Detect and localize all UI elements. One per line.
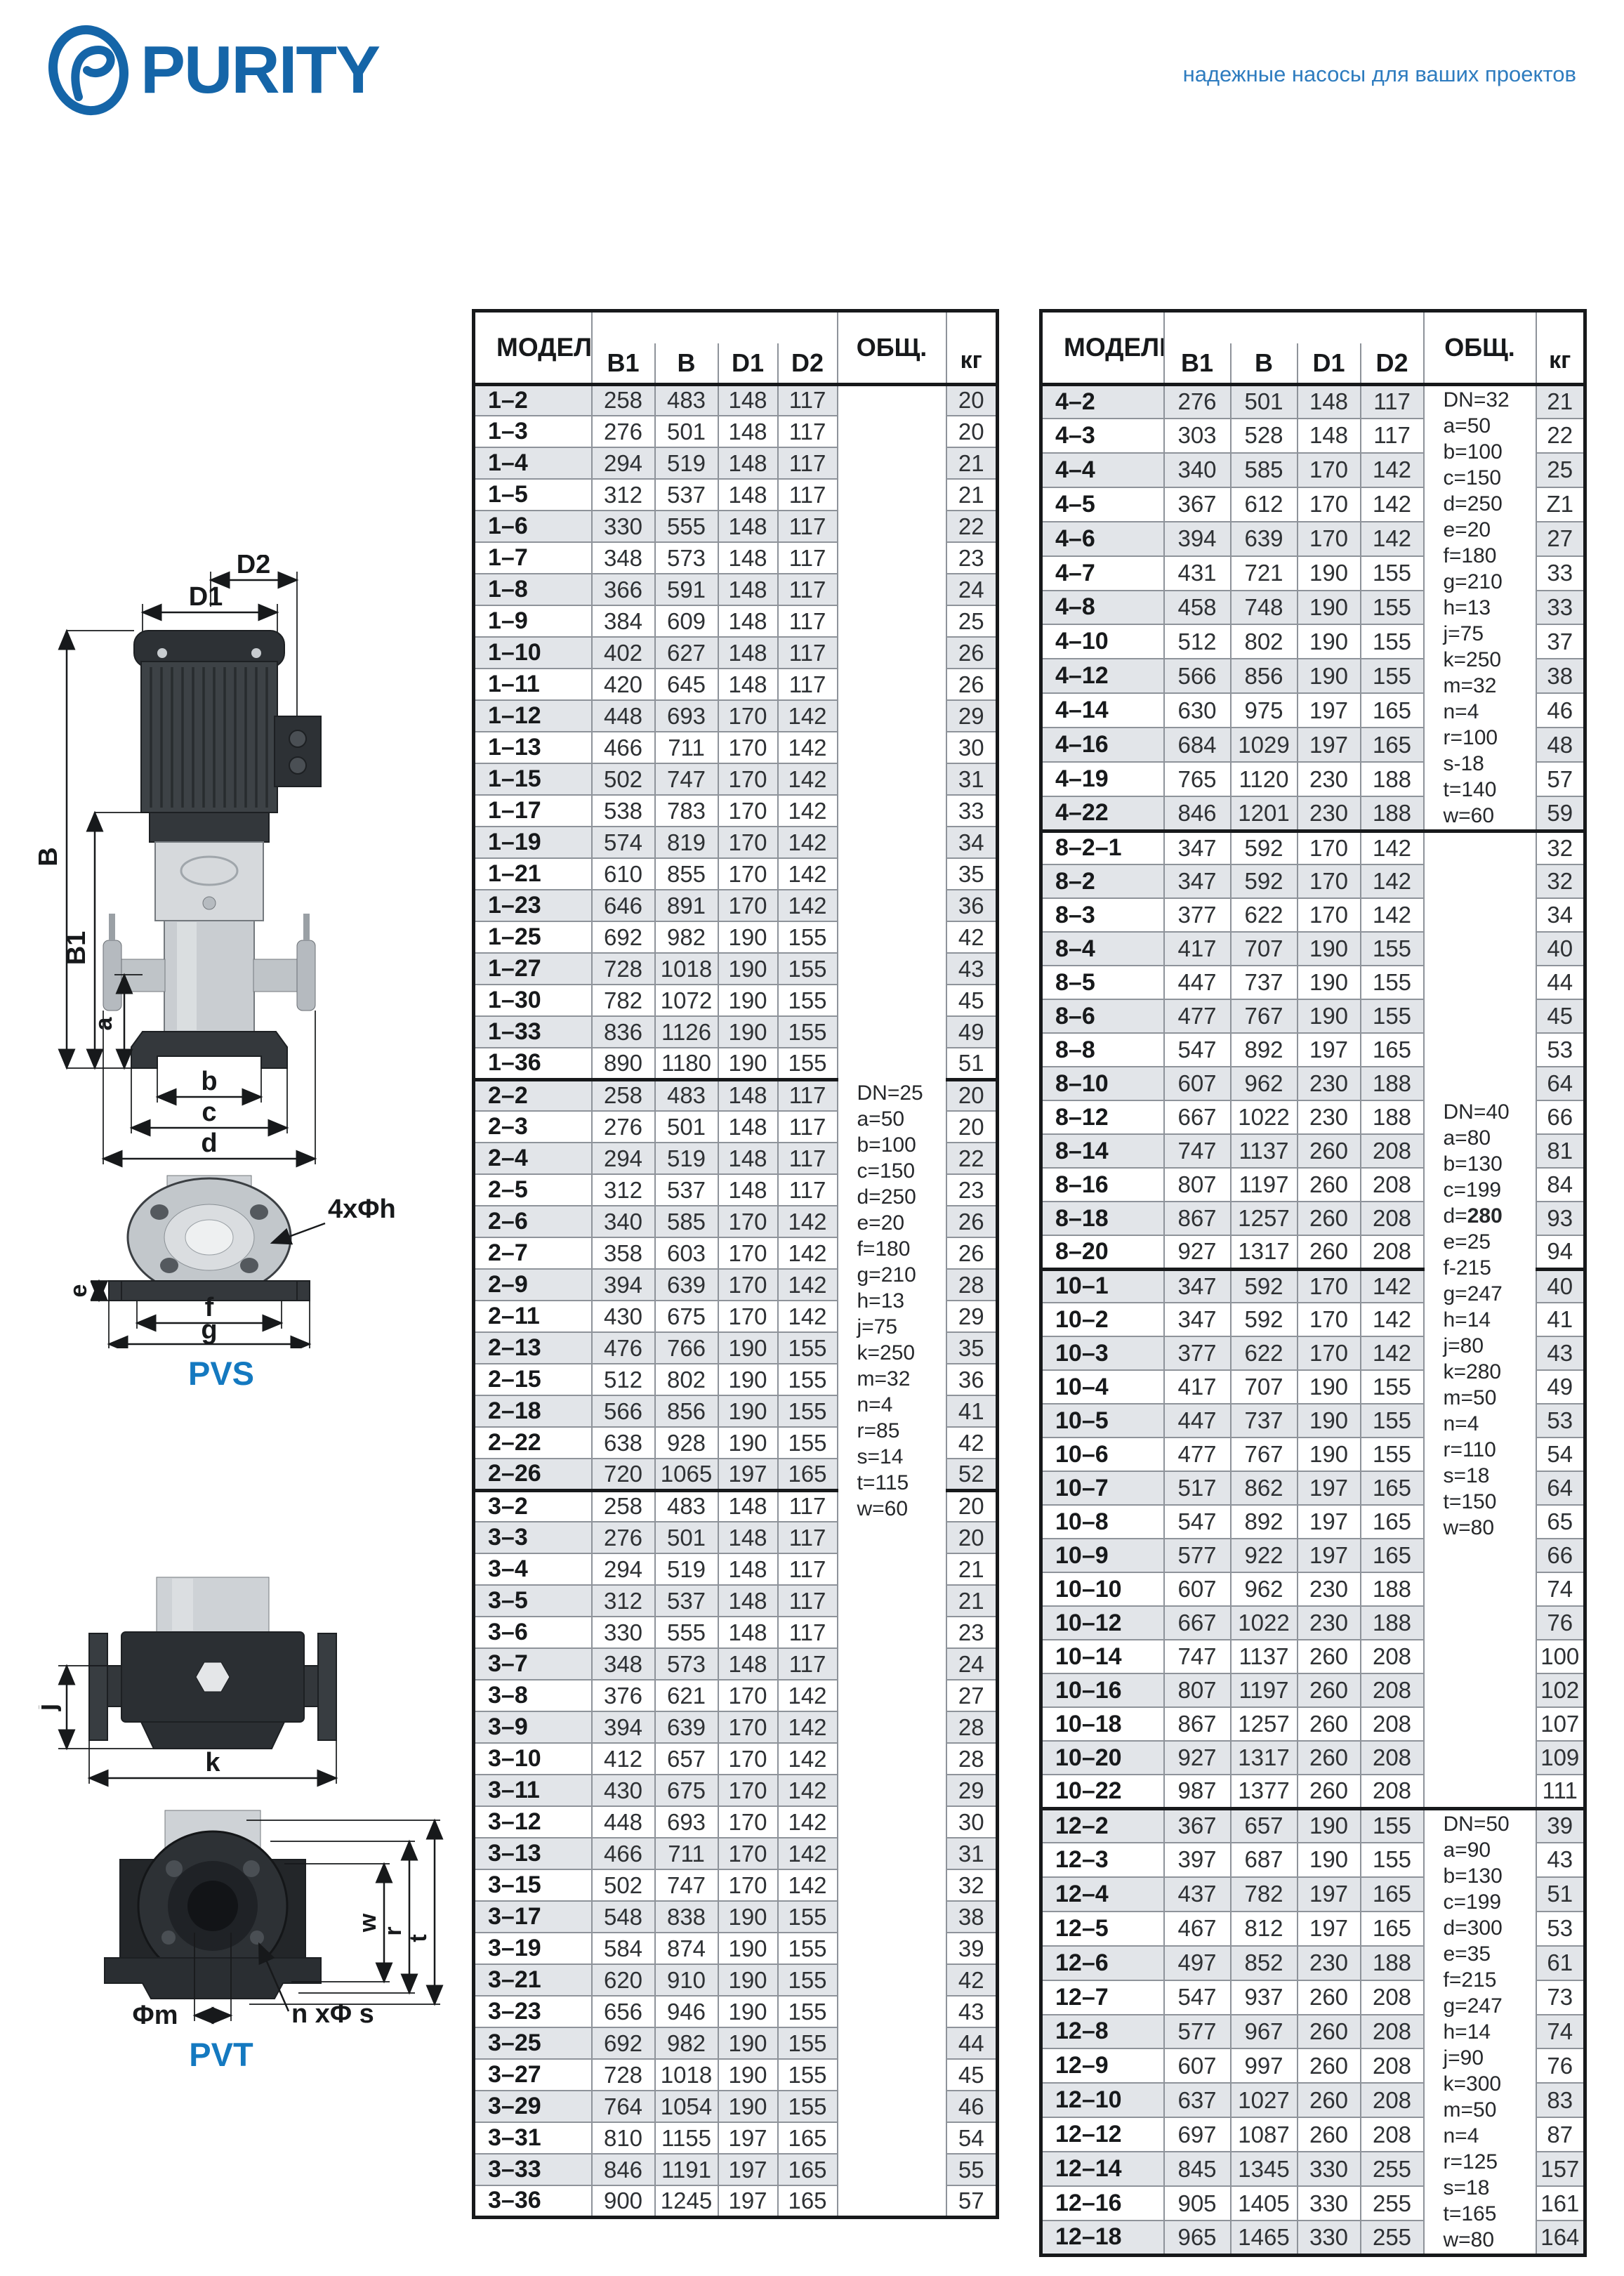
weight-cell: 42 xyxy=(946,1964,998,1996)
dim-cell: 190 xyxy=(718,953,778,985)
model-cell: 12–18 xyxy=(1041,2221,1164,2255)
weight-cell: 61 xyxy=(1536,1946,1585,1980)
dim-cell: 483 xyxy=(655,384,718,416)
model-cell: 8–2 xyxy=(1041,864,1164,898)
weight-cell: 45 xyxy=(946,2059,998,2091)
dim-cell: 577 xyxy=(1164,1539,1231,1572)
dim-cell: 197 xyxy=(1298,1471,1361,1505)
model-cell: 12–10 xyxy=(1041,2083,1164,2117)
model-cell: 3–8 xyxy=(474,1680,592,1711)
dimensions-table-right: МОДЕЛЬОБЩ.кгB1BD1D24–2276501148117DN=32a… xyxy=(1039,309,1587,2257)
dim-cell: 155 xyxy=(1361,591,1424,625)
model-cell: 3–33 xyxy=(474,2154,592,2185)
dim-cell: 117 xyxy=(778,574,838,605)
note-line: s=18 xyxy=(1444,2175,1535,2201)
col-header-dim: B1 xyxy=(1164,343,1231,385)
model-cell: 2–15 xyxy=(474,1364,592,1395)
weight-cell: 64 xyxy=(1536,1471,1585,1505)
dim-cell: 692 xyxy=(592,2027,655,2059)
dim-cell: 975 xyxy=(1231,693,1298,728)
note-line: r=125 xyxy=(1444,2149,1535,2175)
dim-cell: 190 xyxy=(718,1016,778,1048)
dim-cell: 197 xyxy=(1298,1505,1361,1539)
dim-cell: 547 xyxy=(1164,1980,1231,2015)
weight-cell: 83 xyxy=(1536,2083,1585,2117)
model-cell: 12–14 xyxy=(1041,2152,1164,2186)
col-header-dim: D2 xyxy=(778,343,838,385)
dim-cell: 260 xyxy=(1298,1235,1361,1269)
dim-cell: 845 xyxy=(1164,2152,1231,2186)
dim-cell: 810 xyxy=(592,2122,655,2154)
model-cell: 2–22 xyxy=(474,1427,592,1459)
dim-cell: 117 xyxy=(778,1585,838,1617)
model-cell: 1–19 xyxy=(474,827,592,858)
note-line: b=130 xyxy=(1444,1863,1535,1889)
dim-cell: 260 xyxy=(1298,1640,1361,1673)
dim-cell: 1257 xyxy=(1231,1202,1298,1235)
note-line: k=250 xyxy=(857,1340,945,1366)
weight-cell: 81 xyxy=(1536,1134,1585,1168)
model-cell: 8–6 xyxy=(1041,999,1164,1033)
model-cell: 2–4 xyxy=(474,1143,592,1174)
dim-cell: 148 xyxy=(718,1079,778,1111)
model-cell: 12–12 xyxy=(1041,2117,1164,2152)
weight-cell: 65 xyxy=(1536,1505,1585,1539)
weight-cell: 57 xyxy=(946,2185,998,2217)
brand-tagline: надежные насосы для ваших проектов xyxy=(1183,62,1576,87)
note-line: m=50 xyxy=(1444,2097,1535,2123)
model-cell: 10–14 xyxy=(1041,1640,1164,1673)
dim-cell: 142 xyxy=(778,1806,838,1838)
dim-cell: 148 xyxy=(718,605,778,637)
dim-cell: 190 xyxy=(718,2091,778,2122)
dim-cell: 312 xyxy=(592,1585,655,1617)
note-line: w=60 xyxy=(1444,803,1535,829)
dim-cell: 367 xyxy=(1164,487,1231,522)
weight-cell: 37 xyxy=(1536,624,1585,659)
note-line: j=75 xyxy=(857,1314,945,1340)
dim-cell: 764 xyxy=(592,2091,655,2122)
dim-cell: 208 xyxy=(1361,1134,1424,1168)
dim-cell: 639 xyxy=(655,1269,718,1301)
weight-cell: 51 xyxy=(946,1048,998,1079)
dim-cell: 348 xyxy=(592,542,655,574)
dim-cell: 783 xyxy=(655,795,718,827)
dim-cell: 566 xyxy=(1164,659,1231,693)
model-cell: 10–20 xyxy=(1041,1741,1164,1775)
dim-cell: 170 xyxy=(718,1743,778,1775)
dim-cell: 420 xyxy=(592,669,655,700)
weight-cell: 22 xyxy=(946,511,998,542)
dim-cell: 1245 xyxy=(655,2185,718,2217)
model-cell: 10–5 xyxy=(1041,1404,1164,1438)
dim-cell: 294 xyxy=(592,447,655,479)
dim-cell: 430 xyxy=(592,1301,655,1332)
dim-cell: 538 xyxy=(592,795,655,827)
dim-cell: 892 xyxy=(1231,1505,1298,1539)
weight-cell: 34 xyxy=(946,827,998,858)
dim-cell: 1317 xyxy=(1231,1235,1298,1269)
dim-cell: 728 xyxy=(592,953,655,985)
dim-cell: 905 xyxy=(1164,2186,1231,2221)
note-line: t=115 xyxy=(857,1470,945,1496)
note-line: t=165 xyxy=(1444,2201,1535,2227)
model-cell: 3–12 xyxy=(474,1806,592,1838)
weight-cell: 36 xyxy=(946,1364,998,1395)
dim-cell: 1155 xyxy=(655,2122,718,2154)
dim-cell: 190 xyxy=(718,1996,778,2027)
dim-cell: 330 xyxy=(592,511,655,542)
pvs-label: PVS xyxy=(39,1354,404,1393)
dim-cell: 812 xyxy=(1231,1912,1298,1946)
note-line: s-18 xyxy=(1444,751,1535,777)
model-cell: 12–6 xyxy=(1041,1946,1164,1980)
model-cell: 3–29 xyxy=(474,2091,592,2122)
dim-cell: 1345 xyxy=(1231,2152,1298,2186)
weight-cell: 33 xyxy=(1536,556,1585,591)
weight-cell: 32 xyxy=(1536,864,1585,898)
dim-cell: 802 xyxy=(655,1364,718,1395)
dim-cell: 197 xyxy=(1298,1539,1361,1572)
dim-cell: 891 xyxy=(655,890,718,921)
dim-cell: 142 xyxy=(778,1838,838,1869)
model-cell: 12–7 xyxy=(1041,1980,1164,2015)
table-row: 8–2–1347592170142DN=40a=80b=130c=199d=28… xyxy=(1041,831,1585,864)
dim-cell: 467 xyxy=(1164,1912,1231,1946)
weight-cell: 93 xyxy=(1536,1202,1585,1235)
weight-cell: 29 xyxy=(946,700,998,732)
col-header-dim: D1 xyxy=(718,343,778,385)
dim-cell: 148 xyxy=(718,1553,778,1585)
dim-cell: 260 xyxy=(1298,1707,1361,1741)
dim-cell: 384 xyxy=(592,605,655,637)
weight-cell: Z1 xyxy=(1536,487,1585,522)
dim-cell: 148 xyxy=(718,1143,778,1174)
dim-cell: 197 xyxy=(1298,1033,1361,1067)
dim-cell: 258 xyxy=(592,384,655,416)
dim-cell: 188 xyxy=(1361,1606,1424,1640)
note-line: c=150 xyxy=(1444,465,1535,491)
dim-cell: 165 xyxy=(778,2122,838,2154)
weight-cell: 27 xyxy=(1536,522,1585,556)
notes-block: DN=50a=90b=130c=199d=300e=35f=215g=247h=… xyxy=(1425,1811,1535,2253)
dim-cell: 165 xyxy=(1361,1912,1424,1946)
dim-cell: 836 xyxy=(592,1016,655,1048)
note-line: f=215 xyxy=(1444,1967,1535,1993)
note-line: e=20 xyxy=(857,1210,945,1236)
dim-cell: 519 xyxy=(655,447,718,479)
dim-cell: 477 xyxy=(1164,1438,1231,1471)
weight-cell: 111 xyxy=(1536,1775,1585,1808)
dim-cell: 592 xyxy=(1231,864,1298,898)
dim-cell: 260 xyxy=(1298,2117,1361,2152)
table-header: МОДЕЛЬОБЩ.кгB1BD1D2 xyxy=(1041,311,1585,385)
dim-cell: 846 xyxy=(592,2154,655,2185)
weight-cell: 41 xyxy=(946,1395,998,1427)
dim-cell: 747 xyxy=(1164,1640,1231,1673)
weight-cell: 23 xyxy=(946,1174,998,1206)
model-cell: 3–9 xyxy=(474,1711,592,1743)
dim-cell: 1180 xyxy=(655,1048,718,1079)
dim-cell: 592 xyxy=(1231,831,1298,864)
dim-cell: 142 xyxy=(778,1206,838,1237)
dim-cell: 592 xyxy=(1231,1303,1298,1336)
dim-cell: 431 xyxy=(1164,556,1231,591)
dim-cell: 148 xyxy=(718,542,778,574)
dim-cell: 190 xyxy=(1298,1808,1361,1843)
dim-cell: 612 xyxy=(1231,487,1298,522)
note-line: f-215 xyxy=(1444,1255,1535,1281)
weight-cell: 21 xyxy=(1536,384,1585,419)
dim-cell: 197 xyxy=(718,1459,778,1490)
dim-cell: 230 xyxy=(1298,796,1361,831)
dim-cell: 519 xyxy=(655,1553,718,1585)
dim-cell: 165 xyxy=(778,2154,838,2185)
dim-cell: 377 xyxy=(1164,898,1231,932)
dim-cell: 862 xyxy=(1231,1471,1298,1505)
note-line: g=210 xyxy=(857,1262,945,1288)
dim-cell: 142 xyxy=(778,1775,838,1806)
table-body: 4–2276501148117DN=32a=50b=100c=150d=250e… xyxy=(1041,384,1585,2255)
dim-cell: 117 xyxy=(778,605,838,637)
model-cell: 10–22 xyxy=(1041,1775,1164,1808)
dim-label-c: c xyxy=(202,1098,216,1127)
note-line: a=80 xyxy=(1444,1125,1535,1151)
dim-cell: 230 xyxy=(1298,762,1361,796)
note-line: f=180 xyxy=(857,1236,945,1262)
dim-cell: 142 xyxy=(1361,1303,1424,1336)
dim-cell: 340 xyxy=(1164,453,1231,487)
dim-cell: 377 xyxy=(1164,1336,1231,1370)
dim-cell: 148 xyxy=(1298,384,1361,419)
weight-cell: 43 xyxy=(1536,1336,1585,1370)
dim-cell: 394 xyxy=(1164,522,1231,556)
dim-cell: 148 xyxy=(718,1648,778,1680)
dim-cell: 148 xyxy=(1298,419,1361,453)
model-cell: 2–2 xyxy=(474,1079,592,1111)
dim-cell: 197 xyxy=(1298,693,1361,728)
weight-cell: 26 xyxy=(946,669,998,700)
dim-cell: 627 xyxy=(655,637,718,669)
dim-cell: 747 xyxy=(655,763,718,795)
model-cell: 2–5 xyxy=(474,1174,592,1206)
dim-cell: 855 xyxy=(655,858,718,890)
note-line: w=80 xyxy=(1444,1515,1535,1541)
col-header-obsh: ОБЩ. xyxy=(1424,311,1536,385)
dim-cell: 155 xyxy=(1361,1370,1424,1404)
weight-cell: 49 xyxy=(1536,1370,1585,1404)
dim-cell: 376 xyxy=(592,1680,655,1711)
weight-cell: 107 xyxy=(1536,1707,1585,1741)
dim-cell: 620 xyxy=(592,1964,655,1996)
dim-cell: 155 xyxy=(1361,999,1424,1033)
weight-cell: 102 xyxy=(1536,1673,1585,1707)
dim-cell: 517 xyxy=(1164,1471,1231,1505)
note-line: r=110 xyxy=(1444,1437,1535,1463)
dim-cell: 142 xyxy=(778,1869,838,1901)
dim-cell: 155 xyxy=(1361,1404,1424,1438)
dim-cell: 577 xyxy=(1164,2015,1231,2049)
weight-cell: 38 xyxy=(1536,659,1585,693)
dim-cell: 170 xyxy=(718,1301,778,1332)
dim-cell: 148 xyxy=(718,1522,778,1553)
note-line: h=13 xyxy=(1444,595,1535,621)
note-line: s=18 xyxy=(1444,1463,1535,1489)
model-cell: 2–9 xyxy=(474,1269,592,1301)
dim-cell: 148 xyxy=(718,1585,778,1617)
weight-cell: 45 xyxy=(1536,999,1585,1033)
dim-cell: 260 xyxy=(1298,1134,1361,1168)
dim-cell: 874 xyxy=(655,1933,718,1964)
dim-cell: 142 xyxy=(778,732,838,763)
note-line: m=32 xyxy=(1444,673,1535,699)
dim-cell: 117 xyxy=(1361,384,1424,419)
dim-cell: 748 xyxy=(1231,591,1298,625)
dim-cell: 585 xyxy=(655,1206,718,1237)
dim-cell: 148 xyxy=(718,416,778,447)
dim-cell: 1087 xyxy=(1231,2117,1298,2152)
dim-cell: 170 xyxy=(718,890,778,921)
weight-cell: 31 xyxy=(946,1838,998,1869)
weight-cell: 38 xyxy=(946,1901,998,1933)
notes-cell: DN=32a=50b=100c=150d=250e=20f=180g=210h=… xyxy=(1424,384,1536,831)
note-line: a=50 xyxy=(857,1106,945,1132)
model-cell: 1–25 xyxy=(474,921,592,953)
dim-label-d1: D1 xyxy=(189,582,223,612)
note-line: h=14 xyxy=(1444,1307,1535,1333)
dim-cell: 417 xyxy=(1164,932,1231,966)
dim-cell: 208 xyxy=(1361,2048,1424,2083)
note-line: e=20 xyxy=(1444,517,1535,543)
dim-cell: 255 xyxy=(1361,2221,1424,2255)
purity-logo: PURITY xyxy=(44,24,379,117)
model-cell: 3–15 xyxy=(474,1869,592,1901)
dim-cell: 197 xyxy=(1298,1877,1361,1912)
dim-cell: 684 xyxy=(1164,728,1231,762)
dim-cell: 707 xyxy=(1231,1370,1298,1404)
dim-cell: 142 xyxy=(1361,487,1424,522)
note-line: n=4 xyxy=(1444,1411,1535,1437)
model-cell: 3–17 xyxy=(474,1901,592,1933)
dim-cell: 258 xyxy=(592,1490,655,1522)
dim-cell: 148 xyxy=(718,574,778,605)
dim-cell: 170 xyxy=(1298,864,1361,898)
dim-cell: 366 xyxy=(592,574,655,605)
dim-cell: 142 xyxy=(1361,453,1424,487)
dim-cell: 1317 xyxy=(1231,1741,1298,1775)
note-line: c=150 xyxy=(857,1158,945,1184)
model-cell: 4–2 xyxy=(1041,384,1164,419)
dim-cell: 260 xyxy=(1298,1673,1361,1707)
dim-cell: 1072 xyxy=(655,985,718,1016)
dim-cell: 190 xyxy=(1298,1370,1361,1404)
weight-cell: 22 xyxy=(1536,419,1585,453)
weight-cell: 74 xyxy=(1536,1572,1585,1606)
model-cell: 4–6 xyxy=(1041,522,1164,556)
dim-cell: 117 xyxy=(778,669,838,700)
dim-cell: 170 xyxy=(718,1838,778,1869)
dim-cell: 148 xyxy=(718,669,778,700)
note-line: s=14 xyxy=(857,1444,945,1470)
dim-cell: 117 xyxy=(778,1079,838,1111)
dim-cell: 170 xyxy=(718,1206,778,1237)
model-cell: 3–2 xyxy=(474,1490,592,1522)
dim-cell: 190 xyxy=(1298,659,1361,693)
dim-cell: 412 xyxy=(592,1743,655,1775)
dim-cell: 258 xyxy=(592,1079,655,1111)
dim-cell: 170 xyxy=(718,858,778,890)
model-cell: 12–3 xyxy=(1041,1843,1164,1877)
dim-cell: 483 xyxy=(655,1490,718,1522)
dim-cell: 555 xyxy=(655,511,718,542)
model-cell: 10–18 xyxy=(1041,1707,1164,1741)
model-cell: 4–16 xyxy=(1041,728,1164,762)
dim-cell: 747 xyxy=(1164,1134,1231,1168)
model-cell: 8–5 xyxy=(1041,966,1164,999)
notes-block: DN=25a=50b=100c=150d=250e=20f=180g=210h=… xyxy=(839,1080,945,1522)
dim-cell: 155 xyxy=(778,1048,838,1079)
col-header-dim: B xyxy=(655,343,718,385)
weight-cell: 57 xyxy=(1536,762,1585,796)
dim-cell: 982 xyxy=(655,921,718,953)
note-line: k=280 xyxy=(1444,1359,1535,1385)
weight-cell: 164 xyxy=(1536,2221,1585,2255)
dim-cell: 675 xyxy=(655,1301,718,1332)
weight-cell: 48 xyxy=(1536,728,1585,762)
dim-cell: 155 xyxy=(778,1964,838,1996)
dim-cell: 165 xyxy=(778,1459,838,1490)
weight-cell: 26 xyxy=(946,1206,998,1237)
weight-cell: 40 xyxy=(1536,1269,1585,1303)
dim-label-4xfh: 4xΦh xyxy=(328,1195,396,1224)
dim-cell: 967 xyxy=(1231,2015,1298,2049)
dim-cell: 937 xyxy=(1231,1980,1298,2015)
weight-cell: 41 xyxy=(1536,1303,1585,1336)
model-cell: 4–8 xyxy=(1041,591,1164,625)
dimensions-table-left: МОДЕЛЬОБЩ.кгB1BD1D21–2258483148117DN=25a… xyxy=(472,309,999,2219)
model-cell: 8–12 xyxy=(1041,1100,1164,1134)
dim-cell: 230 xyxy=(1298,1606,1361,1640)
dim-label-b: B xyxy=(39,847,63,866)
weight-cell: 44 xyxy=(946,2027,998,2059)
note-line: e=35 xyxy=(1444,1941,1535,1967)
dim-cell: 260 xyxy=(1298,1741,1361,1775)
dim-cell: 117 xyxy=(778,384,838,416)
weight-cell: 27 xyxy=(946,1680,998,1711)
header-row: МОДЕЛЬОБЩ.кг xyxy=(474,311,998,343)
dim-cell: 294 xyxy=(592,1143,655,1174)
dim-cell: 1201 xyxy=(1231,796,1298,831)
dim-cell: 962 xyxy=(1231,1572,1298,1606)
model-cell: 3–4 xyxy=(474,1553,592,1585)
notes-block: DN=32a=50b=100c=150d=250e=20f=180g=210h=… xyxy=(1425,387,1535,829)
dim-cell: 447 xyxy=(1164,1404,1231,1438)
dim-cell: 170 xyxy=(718,700,778,732)
dim-cell: 767 xyxy=(1231,1438,1298,1471)
model-cell: 1–8 xyxy=(474,574,592,605)
dim-cell: 155 xyxy=(1361,1808,1424,1843)
note-line: b=100 xyxy=(857,1132,945,1158)
dim-cell: 1054 xyxy=(655,2091,718,2122)
model-cell: 1–15 xyxy=(474,763,592,795)
dim-cell: 1137 xyxy=(1231,1134,1298,1168)
dim-cell: 142 xyxy=(778,1711,838,1743)
dim-cell: 394 xyxy=(592,1711,655,1743)
dim-cell: 155 xyxy=(778,1364,838,1395)
model-cell: 2–18 xyxy=(474,1395,592,1427)
dim-cell: 148 xyxy=(718,511,778,542)
weight-cell: 43 xyxy=(946,953,998,985)
